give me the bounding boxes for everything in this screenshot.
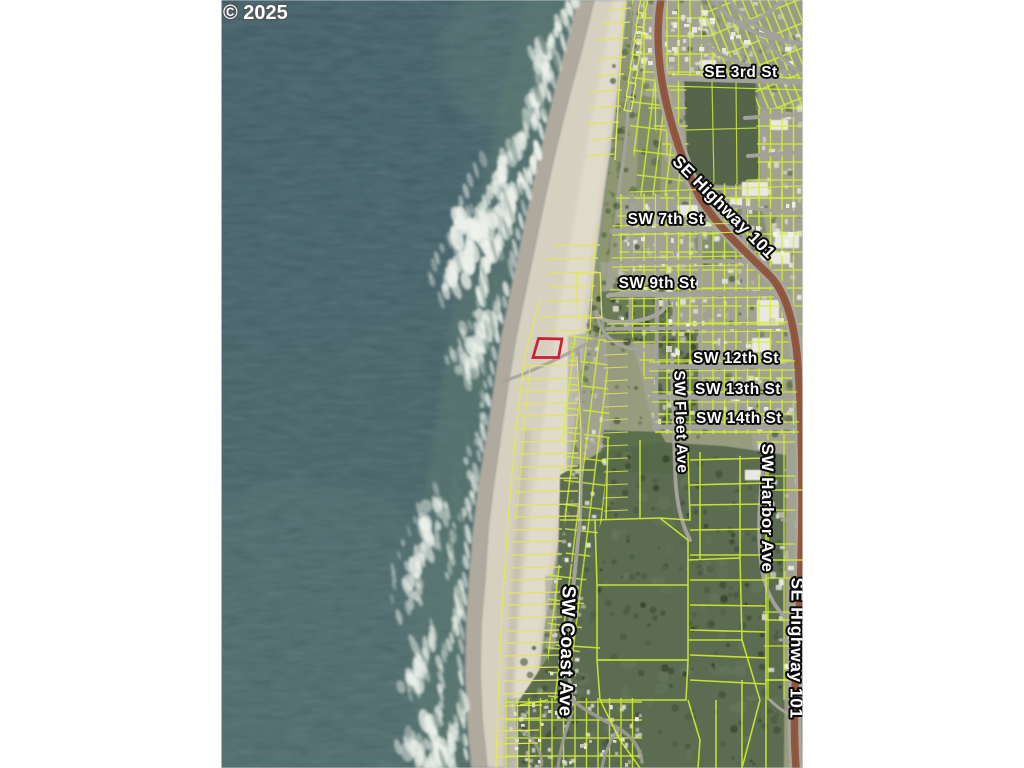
- svg-text:SW Harbor Ave: SW Harbor Ave: [758, 444, 777, 573]
- svg-text:13041: 13041: [568, 342, 575, 357]
- svg-text:SW 12th St: SW 12th St: [693, 350, 779, 367]
- svg-text:SW Coast Ave: SW Coast Ave: [554, 585, 578, 717]
- svg-text:SE 3rd St: SE 3rd St: [704, 64, 777, 81]
- svg-text:© 2025: © 2025: [223, 2, 288, 24]
- svg-text:SW 14th St: SW 14th St: [696, 410, 782, 427]
- svg-text:SW 13th St: SW 13th St: [695, 381, 781, 398]
- svg-text:SW Fleet Ave: SW Fleet Ave: [670, 370, 691, 474]
- svg-text:SW 9th St: SW 9th St: [619, 275, 696, 292]
- svg-text:SW 7th St: SW 7th St: [628, 211, 705, 228]
